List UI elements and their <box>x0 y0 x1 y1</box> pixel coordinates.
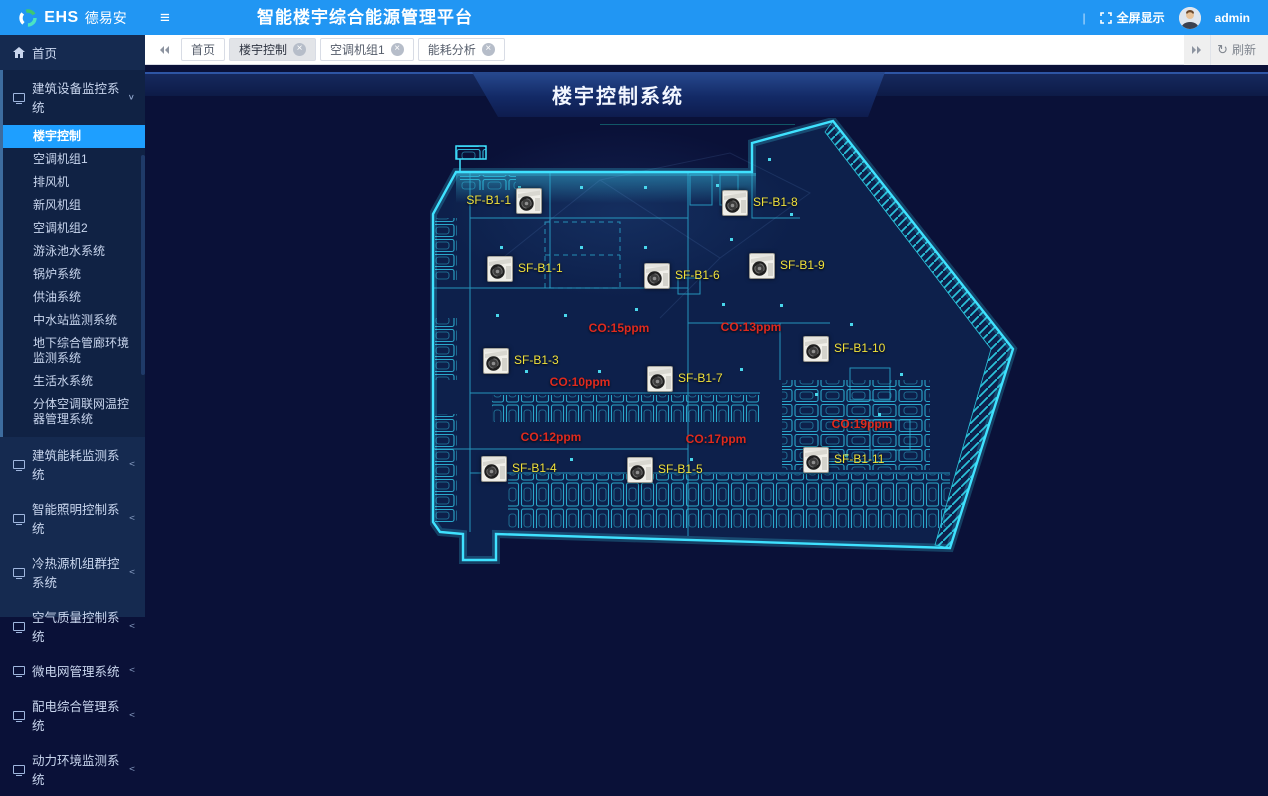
sidebar-group: 建筑设备监控系统 ∨ 楼宇控制空调机组1排风机新风机组空调机组2游泳池水系统锅炉… <box>0 70 145 437</box>
sidebar-subitem[interactable]: 生活水系统 <box>3 370 145 393</box>
chevron-icon: < <box>129 711 135 720</box>
sidebar-group: 冷热源机组群控系统 < <box>0 545 145 599</box>
fan-icon <box>487 254 513 282</box>
tab-list: 首页 楼宇控制 × 空调机组1 × 能耗分析 × <box>181 38 505 61</box>
fan-marker[interactable]: SF-B1-8 <box>722 188 748 216</box>
tab-close-icon[interactable]: × <box>391 43 404 56</box>
chevron-icon: < <box>129 460 135 469</box>
monitor-icon <box>13 514 25 523</box>
sidebar-group-row[interactable]: 动力环境监测系统 < <box>0 742 145 796</box>
fan-label: SF-B1-6 <box>675 268 720 282</box>
tab-close-icon[interactable]: × <box>482 43 495 56</box>
co-reading: CO:19ppm <box>832 417 893 431</box>
fullscreen-icon <box>1100 12 1112 24</box>
fan-marker[interactable]: SF-B1-5 <box>627 455 653 483</box>
fullscreen-label: 全屏显示 <box>1117 9 1165 26</box>
sidebar-group-label: 微电网管理系统 <box>32 661 120 680</box>
fan-label: SF-B1-5 <box>658 462 703 476</box>
fan-marker[interactable]: SF-B1-6 <box>644 261 670 289</box>
chevron-icon: < <box>129 666 135 675</box>
chevron-icon: < <box>129 622 135 631</box>
brand-cn-text: 德易安 <box>85 8 127 28</box>
tab-label: 能耗分析 <box>428 41 476 58</box>
monitor-icon <box>13 711 25 720</box>
sidebar-subitem[interactable]: 地下综合管廊环境监测系统 <box>3 332 145 370</box>
sidebar-group: 配电综合管理系统 < <box>0 688 145 742</box>
fan-label: SF-B1-3 <box>514 353 559 367</box>
fan-label: SF-B1-4 <box>512 461 557 475</box>
home-icon <box>13 47 25 58</box>
fan-marker[interactable]: SF-B1-4 <box>481 454 507 482</box>
hamburger-icon[interactable]: ≡ <box>145 8 185 28</box>
sidebar-group-row[interactable]: 建筑设备监控系统 ∨ <box>3 70 145 124</box>
fan-marker[interactable]: SF-B1-1 <box>487 254 513 282</box>
double-chevron-left-icon <box>159 46 169 54</box>
sidebar-group-label: 建筑设备监控系统 <box>32 78 121 116</box>
monitor-icon <box>13 622 25 631</box>
tab-label: 空调机组1 <box>330 41 385 58</box>
monitor-icon <box>13 765 25 774</box>
fan-icon <box>647 364 673 392</box>
app-title: 智能楼宇综合能源管理平台 <box>257 0 473 35</box>
sidebar-group: 智能照明控制系统 < <box>0 491 145 545</box>
fan-marker[interactable]: SF-B1-9 <box>749 251 775 279</box>
sidebar-group-label: 空气质量控制系统 <box>32 607 122 645</box>
username[interactable]: admin <box>1215 11 1250 25</box>
fan-icon <box>722 188 748 216</box>
fan-icon <box>803 334 829 362</box>
page-banner: 楼宇控制系统 <box>145 72 1268 117</box>
brand-text: EHS <box>44 9 78 27</box>
fan-icon <box>516 186 542 214</box>
co-reading: CO:15ppm <box>589 321 650 335</box>
fullscreen-button[interactable]: 全屏显示 <box>1100 9 1165 26</box>
monitor-icon <box>13 666 25 675</box>
avatar[interactable] <box>1179 7 1201 29</box>
refresh-label: 刷新 <box>1232 41 1256 58</box>
tab-bar: 首页 楼宇控制 × 空调机组1 × 能耗分析 × ↻ 刷新 <box>145 35 1268 65</box>
fan-icon <box>644 261 670 289</box>
sidebar-group-label: 动力环境监测系统 <box>32 750 122 788</box>
sidebar-group-row[interactable]: 空气质量控制系统 < <box>0 599 145 653</box>
sidebar-group: 建筑能耗监测系统 < <box>0 437 145 491</box>
tabs-scroll-left-button[interactable] <box>151 35 177 65</box>
sidebar-group-label: 智能照明控制系统 <box>32 499 122 537</box>
sidebar-group: 动力环境监测系统 < <box>0 742 145 796</box>
fan-icon <box>483 346 509 374</box>
sidebar-subitem[interactable]: 分体空调联网温控器管理系统 <box>3 393 145 431</box>
sidebar: 首页 建筑设备监控系统 ∨ 楼宇控制空调机组1排风机新风机组空调机组2游泳池水系… <box>0 35 145 617</box>
sidebar-item-home[interactable]: 首页 <box>0 35 145 70</box>
tab-close-icon[interactable]: × <box>293 43 306 56</box>
page-title: 楼宇控制系统 <box>545 80 691 109</box>
fan-label: SF-B1-11 <box>834 452 884 466</box>
fan-label: SF-B1-10 <box>834 341 885 355</box>
sidebar-group-row[interactable]: 微电网管理系统 < <box>0 653 145 688</box>
tab-label: 楼宇控制 <box>239 41 287 58</box>
fan-marker[interactable]: SF-B1-7 <box>647 364 673 392</box>
sidebar-subitem[interactable]: 锅炉系统 <box>3 263 145 286</box>
tab-label: 首页 <box>191 41 215 58</box>
sidebar-subitem[interactable]: 供油系统 <box>3 286 145 309</box>
co-reading: CO:10ppm <box>550 375 611 389</box>
tab[interactable]: 空调机组1 × <box>320 38 414 61</box>
fan-label: SF-B1-7 <box>678 371 723 385</box>
sidebar-group-row[interactable]: 智能照明控制系统 < <box>0 491 145 545</box>
fan-icon <box>749 251 775 279</box>
sidebar-subitem[interactable]: 排风机 <box>3 171 145 194</box>
tab[interactable]: 首页 <box>181 38 225 61</box>
fan-label: SF-B1-1 <box>466 193 511 207</box>
tabs-scroll-right-button[interactable] <box>1184 35 1210 65</box>
fan-marker[interactable]: SF-B1-10 <box>803 334 829 362</box>
sidebar-group: 微电网管理系统 < <box>0 653 145 688</box>
tab[interactable]: 能耗分析 × <box>418 38 505 61</box>
app-header: EHS 德易安 ≡ 智能楼宇综合能源管理平台 | 全屏显示 admin <box>0 0 1268 35</box>
fan-label: SF-B1-8 <box>753 195 798 209</box>
sidebar-item-home-label: 首页 <box>32 43 57 62</box>
sidebar-group-label: 冷热源机组群控系统 <box>32 553 122 591</box>
chevron-icon: ∨ <box>128 93 135 102</box>
sidebar-subitem[interactable]: 楼宇控制 <box>3 125 145 148</box>
fan-marker[interactable]: SF-B1-11 <box>803 445 829 473</box>
sidebar-group-row[interactable]: 建筑能耗监测系统 < <box>0 437 145 491</box>
chevron-icon: < <box>129 514 135 523</box>
co-reading: CO:17ppm <box>686 432 747 446</box>
sidebar-subitem[interactable]: 空调机组1 <box>3 148 145 171</box>
sidebar-group-row[interactable]: 配电综合管理系统 < <box>0 688 145 742</box>
tab[interactable]: 楼宇控制 × <box>229 38 316 61</box>
logo-spinner-icon <box>18 8 38 28</box>
co-reading: CO:13ppm <box>721 320 782 334</box>
main-content: 楼宇控制系统 <box>145 65 1268 617</box>
monitor-icon <box>13 93 25 102</box>
co-reading: CO:12ppm <box>521 430 582 444</box>
monitor-icon <box>13 460 25 469</box>
fan-marker[interactable]: SF-B1-3 <box>483 346 509 374</box>
sidebar-groups: 建筑设备监控系统 ∨ 楼宇控制空调机组1排风机新风机组空调机组2游泳池水系统锅炉… <box>0 70 145 796</box>
sidebar-subitem[interactable]: 新风机组 <box>3 194 145 217</box>
sidebar-submenu: 楼宇控制空调机组1排风机新风机组空调机组2游泳池水系统锅炉系统供油系统中水站监测… <box>3 124 145 437</box>
refresh-icon: ↻ <box>1217 42 1228 58</box>
double-chevron-right-icon <box>1192 46 1202 54</box>
sidebar-subitem[interactable]: 游泳池水系统 <box>3 240 145 263</box>
refresh-button[interactable]: ↻ 刷新 <box>1210 35 1268 65</box>
fan-icon <box>627 455 653 483</box>
chevron-icon: < <box>129 765 135 774</box>
fan-icon <box>803 445 829 473</box>
sidebar-group-label: 配电综合管理系统 <box>32 696 122 734</box>
sidebar-group-label: 建筑能耗监测系统 <box>32 445 122 483</box>
sidebar-group: 空气质量控制系统 < <box>0 599 145 653</box>
header-divider: | <box>1083 11 1086 25</box>
floorplan: SF-B1-1 SF-B1-8 SF-B1-1 <box>430 118 1020 565</box>
fan-label: SF-B1-1 <box>518 261 563 275</box>
sidebar-subitem[interactable]: 空调机组2 <box>3 217 145 240</box>
fan-label: SF-B1-9 <box>780 258 825 272</box>
app-logo: EHS 德易安 <box>0 0 145 35</box>
fan-icon <box>481 454 507 482</box>
chevron-icon: < <box>129 568 135 577</box>
fan-marker[interactable]: SF-B1-1 <box>516 186 542 214</box>
sidebar-subitem[interactable]: 中水站监测系统 <box>3 309 145 332</box>
monitor-icon <box>13 568 25 577</box>
sidebar-group-row[interactable]: 冷热源机组群控系统 < <box>0 545 145 599</box>
